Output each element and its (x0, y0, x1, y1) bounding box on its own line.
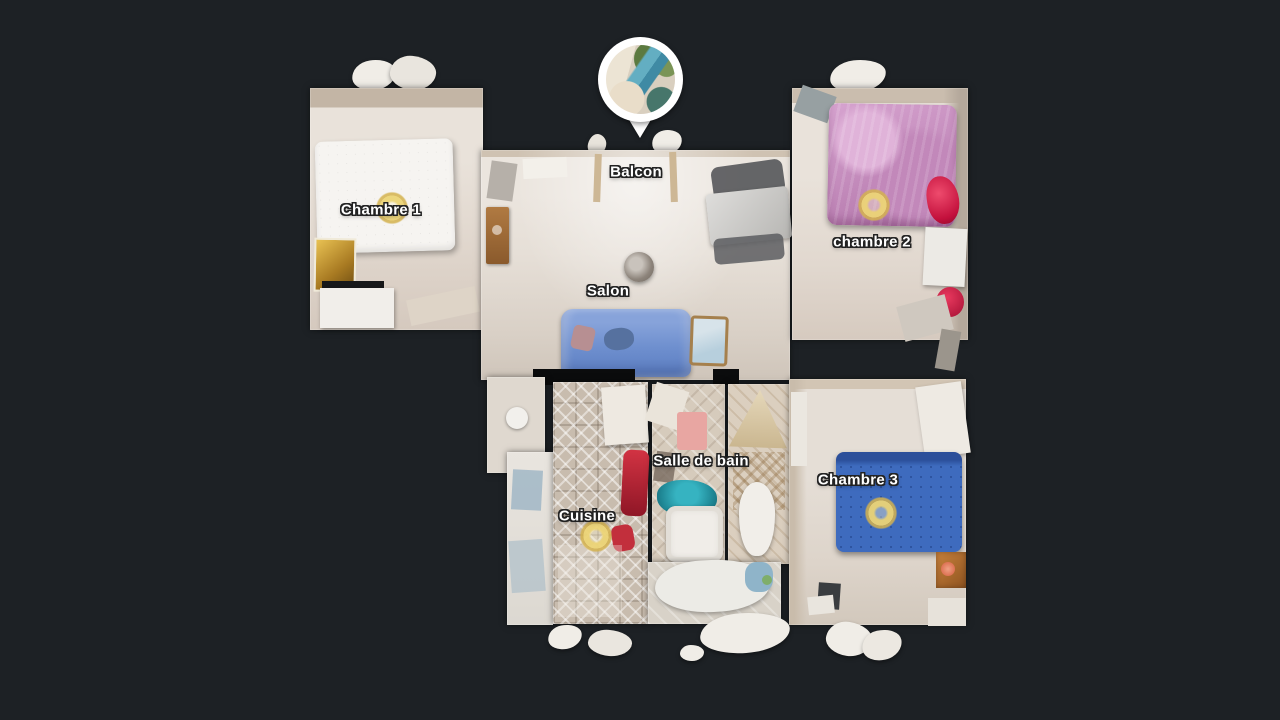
mesh-fragment (388, 54, 437, 93)
balcony-photo-pin[interactable] (596, 36, 685, 136)
room-cuisine[interactable] (553, 382, 648, 624)
label-chambre3: Chambre 3 (818, 472, 898, 489)
wall-segment (713, 369, 739, 385)
label-balcon: Balcon (610, 164, 662, 181)
sweep-marker-chambre2[interactable] (857, 188, 891, 222)
bath-mat-pink (677, 412, 707, 450)
appliance (486, 160, 517, 201)
room-salle-de-bain[interactable] (652, 384, 725, 564)
balcony-post (593, 154, 602, 202)
green-item (762, 575, 772, 585)
balcony-thumbnail-photo (606, 45, 675, 114)
dresser-brown (486, 207, 509, 264)
label-salle-de-bain: Salle de bain (653, 453, 749, 470)
dresser-white (320, 288, 394, 328)
round-table (624, 252, 654, 282)
pin-circle (598, 37, 683, 122)
mesh-fragment (587, 628, 633, 658)
label-salon: Salon (587, 283, 629, 300)
cabinet-mirror (511, 469, 543, 511)
nightstand-wood (936, 552, 966, 588)
tile-patch (558, 545, 622, 617)
sink-pedestal (729, 385, 789, 451)
basket (689, 315, 729, 366)
white-furniture (915, 381, 971, 459)
balcony-post (669, 152, 678, 202)
toilet (739, 482, 775, 556)
mesh-fragment (546, 622, 584, 652)
white-desk (923, 227, 968, 287)
room-wc[interactable] (728, 384, 790, 564)
dresser (928, 598, 966, 626)
label-cuisine: Cuisine (559, 508, 615, 525)
floor-piece (406, 286, 480, 326)
red-appliance (620, 449, 649, 516)
room-salon[interactable] (481, 150, 790, 380)
mesh-fragment (680, 645, 704, 661)
white-item (807, 595, 835, 616)
cabinet-top (523, 157, 568, 179)
bathtub (666, 506, 723, 562)
label-chambre1: Chambre 1 (341, 202, 421, 219)
sweep-marker-chambre3[interactable] (864, 496, 898, 530)
label-chambre2: chambre 2 (833, 234, 911, 251)
dollhouse-floorplan-view: Balcon Chambre 1 chambre 2 Salon Salle d… (0, 0, 1280, 720)
bed-blue (836, 452, 962, 552)
fridge (601, 385, 649, 446)
wardrobe-strip (791, 392, 807, 466)
dining-chairs (713, 233, 785, 265)
hall-cabinets (507, 452, 553, 625)
cabinet-mirror (508, 539, 546, 593)
hallway-item (506, 407, 528, 429)
